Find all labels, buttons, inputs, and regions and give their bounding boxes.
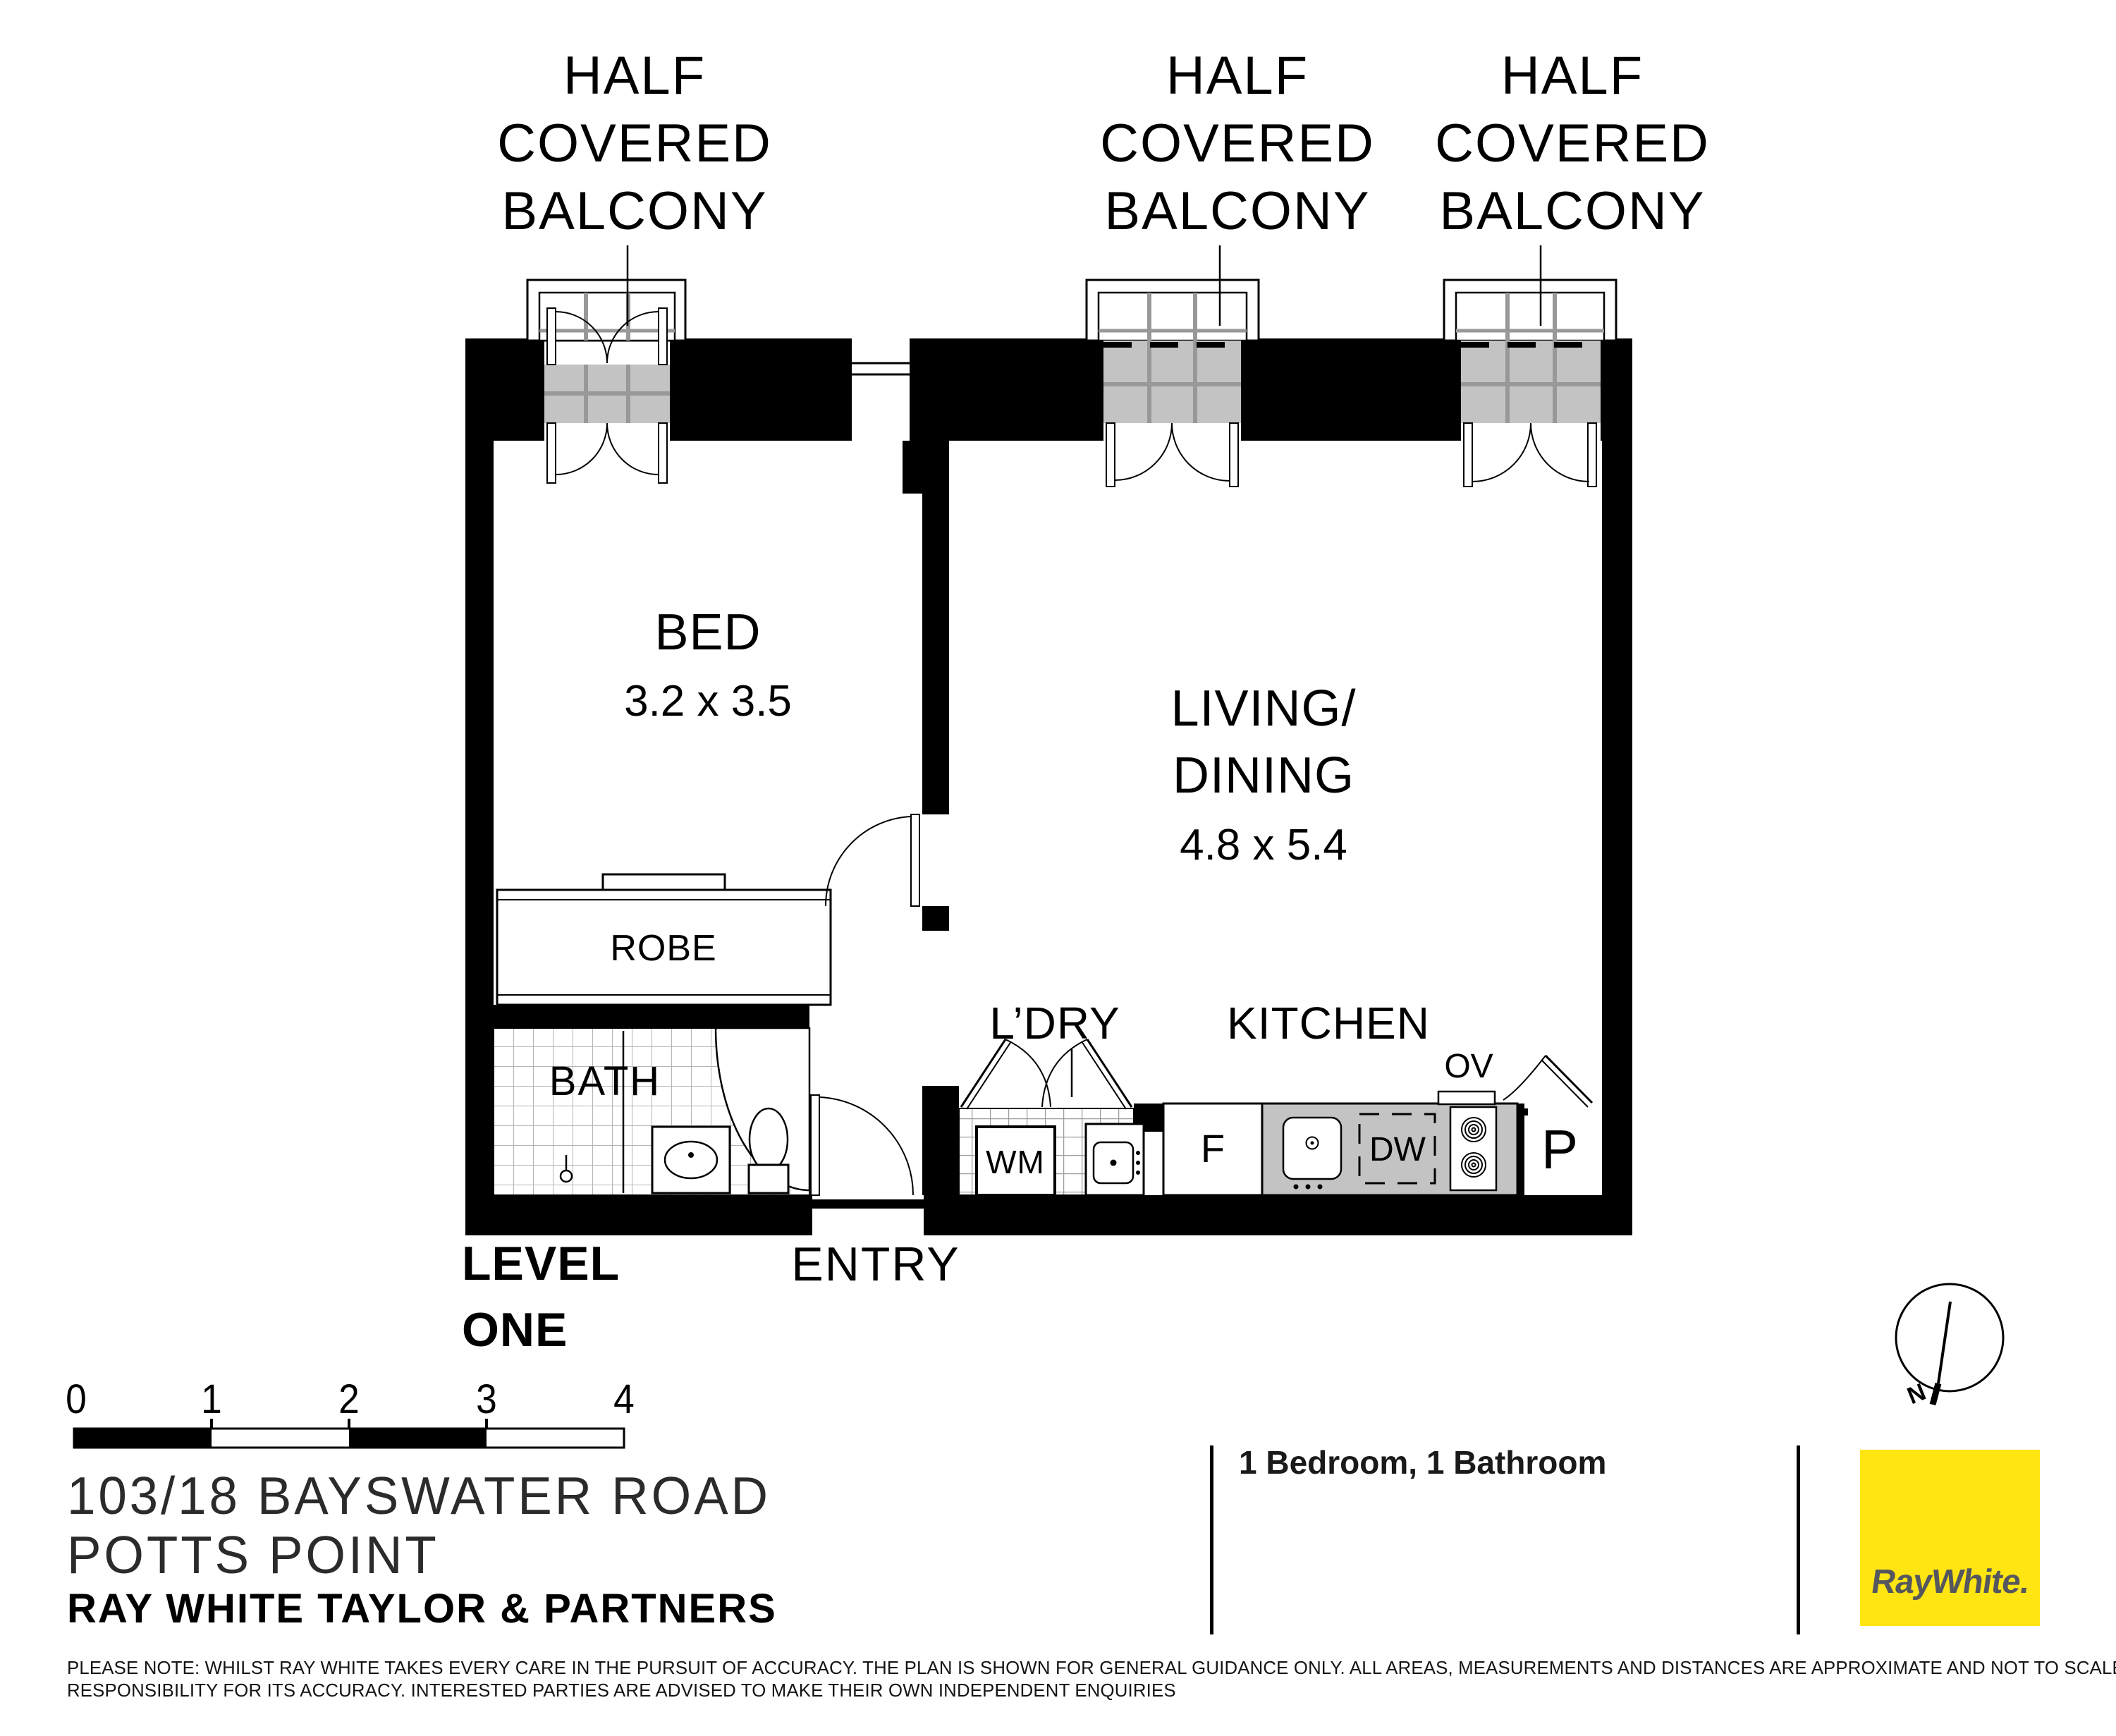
- label-fridge: F: [1201, 1128, 1225, 1170]
- bedroom-door: [826, 814, 919, 906]
- room-label-bed: BED: [654, 606, 761, 660]
- disclaimer-line1: PLEASE NOTE: WHILST RAY WHITE TAKES EVER…: [67, 1658, 2116, 1677]
- scale-tick-0: 0: [66, 1379, 87, 1422]
- balcony-door-living-1: [1087, 245, 1259, 487]
- room-label-bath: BATH: [549, 1060, 661, 1104]
- label-oven: OV: [1444, 1049, 1493, 1084]
- entry-door: [811, 1095, 924, 1209]
- entry-threshold: [812, 1199, 924, 1209]
- toilet-icon: [749, 1108, 788, 1193]
- room-dims-living: 4.8 x 5.4: [1180, 822, 1347, 868]
- divider-left: [1210, 1445, 1213, 1634]
- kitchen: [1163, 1056, 1592, 1195]
- room-dims-bed: 3.2 x 3.5: [624, 678, 792, 724]
- oven-box: [1438, 1092, 1495, 1104]
- raywhite-logo-text: RayWhite.: [1869, 1563, 2031, 1601]
- features-text: 1 Bedroom, 1 Bathroom: [1239, 1445, 1606, 1479]
- floorplan-page: HALF COVERED BALCONY HALF COVERED BALCON…: [0, 0, 2116, 1736]
- level-label-line1: LEVEL: [462, 1239, 620, 1289]
- label-pantry: P: [1541, 1121, 1578, 1179]
- disclaimer-line2: RESPONSIBILITY FOR ITS ACCURACY. INTERES…: [67, 1681, 1176, 1700]
- room-label-living: LIVING/: [1170, 683, 1356, 736]
- scale-tick-3: 3: [476, 1379, 497, 1422]
- agency-name: RAY WHITE TAYLOR & PARTNERS: [67, 1588, 777, 1631]
- highlight-window: [852, 338, 910, 441]
- scale-tick-2: 2: [338, 1379, 360, 1422]
- room-label-entry: ENTRY: [791, 1240, 960, 1290]
- room-label-robe: ROBE: [610, 929, 716, 968]
- scale-tick-1: 1: [201, 1379, 222, 1422]
- level-label-line2: ONE: [462, 1305, 568, 1355]
- kitchen-sink: [1283, 1118, 1341, 1190]
- laundry-tub: [1086, 1124, 1144, 1195]
- divider-right: [1797, 1445, 1800, 1634]
- room-label-kitchen: KITCHEN: [1227, 1000, 1430, 1047]
- scale-tick-4: 4: [613, 1379, 635, 1422]
- scale-bar: [74, 1419, 624, 1448]
- shower-tap-icon: [561, 1170, 572, 1182]
- raywhite-logo: RayWhite.: [1860, 1450, 2040, 1626]
- label-washing-machine: WM: [986, 1145, 1045, 1179]
- balcony-label-1: HALF COVERED BALCONY: [497, 42, 772, 245]
- balcony-door-living-2: [1444, 245, 1616, 487]
- bathroom: [494, 1028, 809, 1195]
- room-label-laundry: L’DRY: [989, 1000, 1120, 1047]
- address-line2: POTTS POINT: [67, 1527, 439, 1583]
- balcony-label-2: HALF COVERED BALCONY: [1100, 42, 1375, 245]
- balcony-door-bedroom: [527, 245, 685, 483]
- label-dishwasher: DW: [1369, 1132, 1426, 1168]
- vanity-basin: [652, 1127, 730, 1193]
- laundry-bifold-doors: [961, 1039, 1132, 1109]
- balcony-label-3: HALF COVERED BALCONY: [1435, 42, 1710, 245]
- room-label-dining: DINING: [1173, 750, 1354, 803]
- address-line1: 103/18 BAYSWATER ROAD: [67, 1468, 771, 1524]
